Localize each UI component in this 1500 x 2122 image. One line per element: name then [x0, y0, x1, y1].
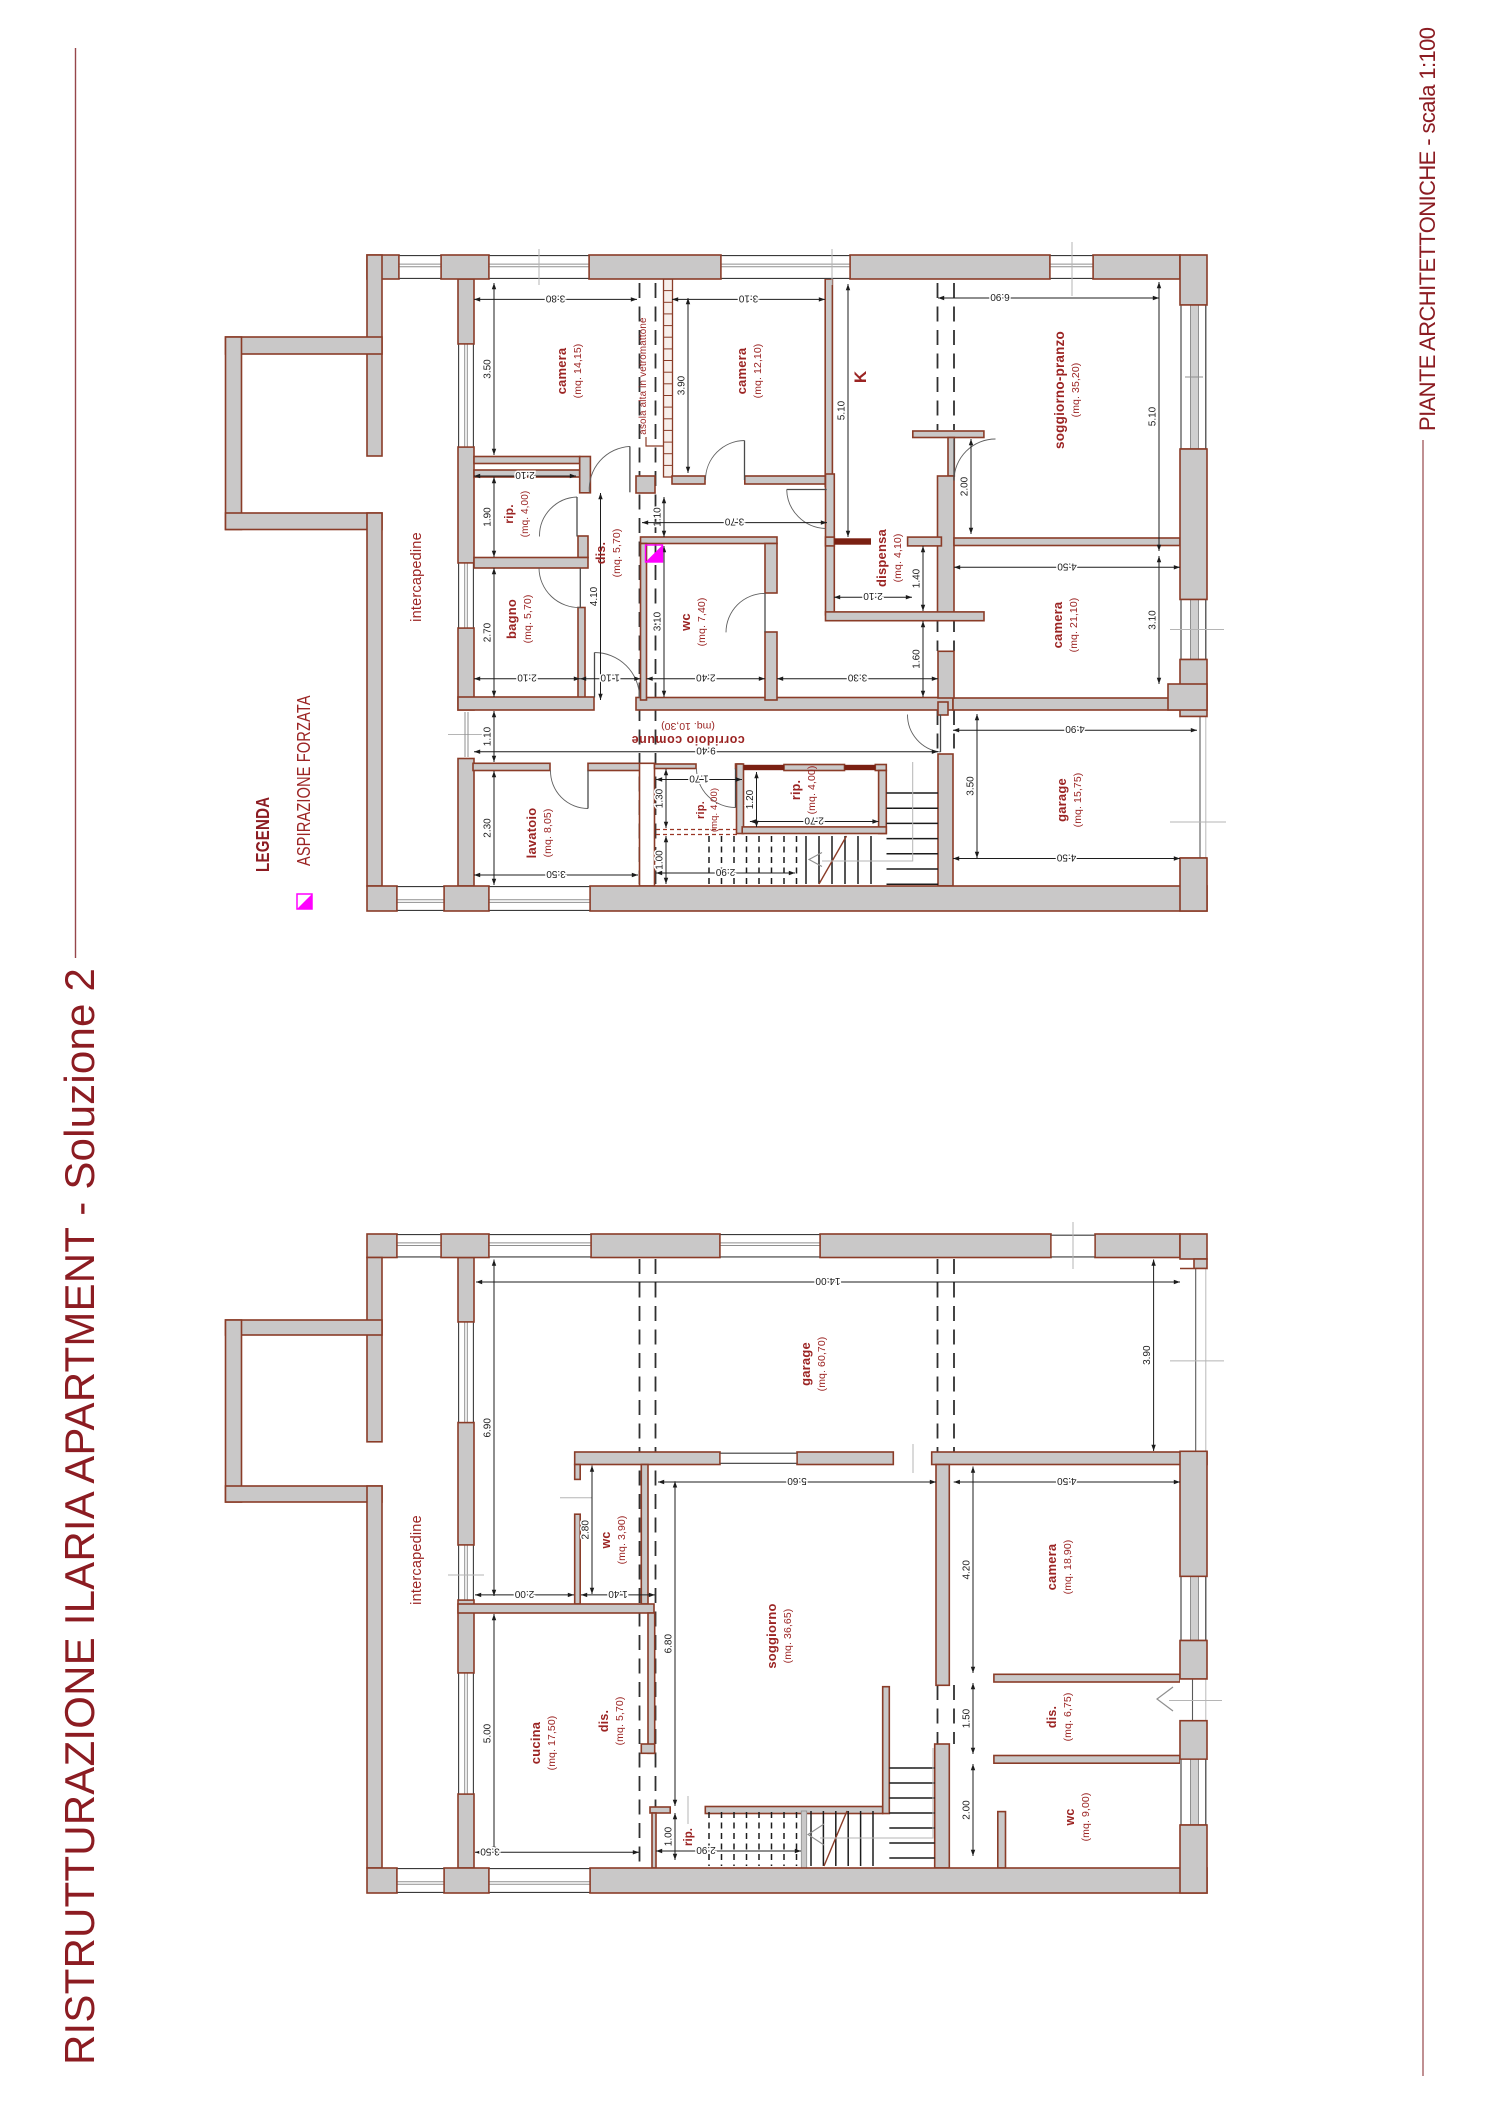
svg-text:4.10: 4.10: [589, 586, 600, 606]
svg-text:wc: wc: [599, 1531, 613, 1549]
svg-text:1.50: 1.50: [962, 1708, 973, 1728]
svg-text:3.10: 3.10: [738, 292, 758, 303]
svg-text:2.10: 2.10: [517, 672, 537, 683]
svg-text:cucina: cucina: [528, 1721, 543, 1764]
svg-text:4.50: 4.50: [1056, 852, 1076, 863]
svg-text:rip.: rip.: [695, 801, 707, 819]
svg-text:3.80: 3.80: [545, 292, 565, 303]
svg-text:3.30: 3.30: [847, 672, 867, 683]
svg-text:dis.: dis.: [1045, 1706, 1059, 1728]
svg-text:3.90: 3.90: [1142, 1345, 1153, 1365]
svg-text:asola alta in vetromattone: asola alta in vetromattone: [638, 317, 649, 435]
svg-text:1.60: 1.60: [912, 649, 923, 669]
svg-text:(mq. 14,15): (mq. 14,15): [572, 344, 584, 399]
svg-text:1.20: 1.20: [745, 789, 756, 809]
svg-text:1.00: 1.00: [655, 850, 666, 870]
svg-text:intercapedine: intercapedine: [409, 1515, 425, 1605]
svg-text:3.50: 3.50: [966, 776, 977, 796]
svg-text:(mq. 7,40): (mq. 7,40): [696, 598, 708, 647]
svg-text:4.20: 4.20: [962, 1560, 973, 1580]
svg-text:5.60: 5.60: [787, 1475, 807, 1486]
svg-text:lavatoio: lavatoio: [524, 808, 539, 859]
svg-text:2.30: 2.30: [483, 818, 494, 838]
svg-text:ASPIRAZIONE FORZATA: ASPIRAZIONE FORZATA: [295, 695, 315, 866]
svg-text:1.40: 1.40: [608, 1588, 628, 1599]
svg-text:rip.: rip.: [789, 780, 803, 800]
svg-text:soggiorno-pranzo: soggiorno-pranzo: [1052, 331, 1067, 449]
svg-text:(mq. 6,75): (mq. 6,75): [1062, 1693, 1074, 1742]
svg-text:(mq. 4,00): (mq. 4,00): [520, 491, 531, 538]
svg-text:(mq. 5,70): (mq. 5,70): [611, 529, 623, 578]
svg-text:(mq. 5,70): (mq. 5,70): [522, 595, 534, 644]
svg-text:(mq. 3,90): (mq. 3,90): [616, 1516, 628, 1565]
svg-text:2.00: 2.00: [514, 1588, 534, 1599]
svg-text:dis.: dis.: [594, 542, 608, 564]
svg-text:3.10: 3.10: [653, 611, 664, 631]
svg-text:2.40: 2.40: [696, 672, 716, 683]
svg-text:3.50: 3.50: [546, 868, 566, 879]
svg-text:(mq. 4,10): (mq. 4,10): [892, 534, 904, 583]
svg-text:3.50: 3.50: [483, 359, 494, 379]
svg-text:camera: camera: [554, 347, 569, 394]
svg-text:3.10: 3.10: [1148, 610, 1159, 630]
svg-text:1.10: 1.10: [653, 507, 664, 527]
svg-text:2.70: 2.70: [804, 815, 824, 826]
svg-text:wc: wc: [678, 613, 693, 632]
svg-text:1.10: 1.10: [600, 672, 620, 683]
svg-text:(mq. 17,50): (mq. 17,50): [546, 1716, 558, 1771]
svg-text:2.70: 2.70: [483, 622, 494, 642]
svg-text:(mq. 8,05): (mq. 8,05): [542, 809, 554, 858]
svg-text:3.90: 3.90: [677, 375, 688, 395]
svg-text:K: K: [851, 370, 870, 383]
svg-text:4.50: 4.50: [1057, 1475, 1077, 1486]
svg-text:4.50: 4.50: [1057, 560, 1077, 571]
svg-text:(mq. 35,20): (mq. 35,20): [1070, 363, 1082, 418]
svg-text:garage: garage: [798, 1342, 813, 1386]
svg-text:5.10: 5.10: [837, 400, 848, 420]
svg-text:dis.: dis.: [597, 1710, 611, 1732]
svg-text:wc: wc: [1063, 1808, 1077, 1826]
svg-text:corridoio comune: corridoio comune: [631, 733, 745, 747]
svg-text:(mq. 15,75): (mq. 15,75): [1072, 773, 1084, 828]
svg-text:6.90: 6.90: [990, 291, 1010, 302]
svg-text:dispensa: dispensa: [874, 528, 889, 587]
svg-text:2.00: 2.00: [962, 1800, 973, 1820]
svg-text:(mq. 10,30): (mq. 10,30): [661, 720, 715, 732]
svg-text:1.10: 1.10: [483, 726, 494, 746]
svg-text:1.70: 1.70: [689, 773, 709, 784]
svg-text:2.90: 2.90: [715, 866, 735, 877]
svg-text:2.00: 2.00: [960, 476, 971, 496]
svg-text:(mq. 9,00): (mq. 9,00): [1080, 1793, 1092, 1842]
svg-text:1.40: 1.40: [912, 568, 923, 588]
svg-text:2.10: 2.10: [863, 590, 883, 601]
svg-text:1.00: 1.00: [664, 1826, 675, 1846]
svg-text:bagno: bagno: [504, 599, 519, 639]
svg-text:intercapedine: intercapedine: [409, 532, 425, 622]
svg-text:1.90: 1.90: [483, 507, 494, 527]
svg-text:2.10: 2.10: [515, 469, 535, 480]
svg-text:14.00: 14.00: [815, 1275, 840, 1286]
svg-text:2.80: 2.80: [581, 1520, 592, 1540]
svg-text:(mq. 4,00): (mq. 4,00): [709, 788, 720, 832]
svg-text:2.90: 2.90: [696, 1844, 716, 1855]
svg-text:rip.: rip.: [502, 504, 516, 523]
svg-text:(mq. 18,90): (mq. 18,90): [1062, 1540, 1074, 1595]
svg-text:(mq. 36,65): (mq. 36,65): [782, 1609, 794, 1664]
svg-text:RISTRUTTURAZIONE ILARIA APARTM: RISTRUTTURAZIONE ILARIA APARTMENT - Solu…: [56, 968, 103, 2065]
svg-text:(mq. 60,70): (mq. 60,70): [816, 1337, 828, 1392]
svg-text:camera: camera: [1050, 601, 1065, 648]
svg-text:(mq. 21,10): (mq. 21,10): [1068, 598, 1080, 653]
svg-text:3.50: 3.50: [480, 1845, 500, 1856]
svg-text:garage: garage: [1054, 778, 1069, 822]
svg-text:4.90: 4.90: [1065, 723, 1085, 734]
svg-text:5.00: 5.00: [483, 1723, 494, 1743]
svg-text:6.80: 6.80: [664, 1634, 675, 1654]
svg-text:(mq. 4,00): (mq. 4,00): [806, 766, 818, 815]
svg-text:soggiorno: soggiorno: [764, 1603, 779, 1668]
svg-text:5.10: 5.10: [1148, 406, 1159, 426]
svg-text:3.70: 3.70: [724, 516, 744, 527]
svg-text:LEGENDA: LEGENDA: [252, 797, 273, 872]
svg-text:(mq. 5,70): (mq. 5,70): [614, 1697, 626, 1746]
svg-text:rip.: rip.: [683, 1828, 695, 1846]
svg-text:1.30: 1.30: [655, 788, 666, 808]
svg-text:PIANTE ARCHITETTONICHE - scala: PIANTE ARCHITETTONICHE - scala 1:100: [1415, 27, 1440, 431]
svg-text:(mq. 12,10): (mq. 12,10): [752, 344, 764, 399]
svg-text:camera: camera: [734, 347, 749, 394]
svg-text:6.90: 6.90: [483, 1418, 494, 1438]
svg-text:camera: camera: [1044, 1543, 1059, 1590]
